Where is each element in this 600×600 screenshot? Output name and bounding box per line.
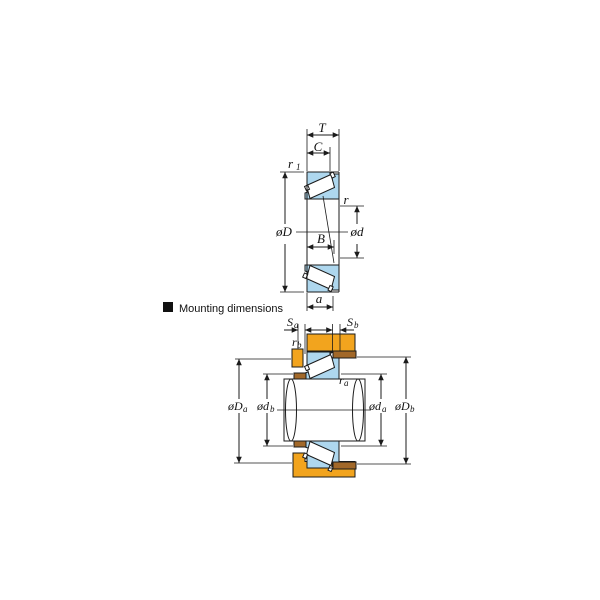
mounting-dimensions-heading: Mounting dimensions: [163, 302, 283, 315]
dim-label-rb-subscript: b: [297, 340, 302, 350]
dim-label-Db-subscript: b: [410, 404, 415, 414]
dim-label-r: r: [343, 192, 349, 207]
housing-block-top: [307, 334, 355, 351]
shaft-shoulder-block-top-left: [292, 349, 303, 367]
dim-label-Db: øD: [394, 399, 410, 413]
dim-label-C: C: [314, 139, 323, 154]
dim-label-r1: r: [288, 156, 294, 171]
dim-label-Sb: S: [347, 315, 353, 329]
dim-label-Da-subscript: a: [243, 404, 248, 414]
bearing-cross-section-figure: T C r 1 øD r ød B a: [275, 120, 364, 311]
dim-label-Da: øD: [227, 399, 243, 413]
dim-label-Sa-subscript: a: [294, 320, 299, 330]
dim-label-a: a: [316, 291, 323, 306]
spacer-ring-top-left: [294, 373, 306, 379]
dim-label-ra-subscript: a: [344, 378, 349, 388]
spacer-ring-top-right: [333, 351, 356, 358]
drawing-svg: T C r 1 øD r ød B a Mounting dimensions: [0, 0, 600, 600]
dim-label-Sa: S: [287, 315, 293, 329]
dim-label-db: ød: [256, 399, 270, 413]
spacer-ring-bottom-left: [294, 441, 306, 447]
dim-label-db-subscript: b: [270, 404, 275, 414]
square-bullet-icon: [163, 302, 173, 312]
dim-label-da: ød: [368, 399, 382, 413]
dim-label-B: B: [317, 231, 325, 246]
dim-label-outer-diameter: øD: [275, 224, 293, 239]
dim-label-Sb-subscript: b: [354, 320, 359, 330]
spacer-ring-bottom-right: [333, 462, 356, 469]
heading-text: Mounting dimensions: [179, 303, 283, 315]
dim-label-r1-subscript: 1: [296, 162, 301, 172]
dim-label-T: T: [318, 120, 326, 135]
contact-angle-line: [323, 196, 334, 263]
dim-label-da-subscript: a: [382, 404, 387, 414]
bearing-dimension-drawing: T C r 1 øD r ød B a Mounting dimensions: [0, 0, 600, 600]
dim-label-bore-diameter: ød: [350, 224, 365, 239]
mounting-figure: S a S b r b r a øD a ød b ød a øD b: [227, 315, 415, 477]
